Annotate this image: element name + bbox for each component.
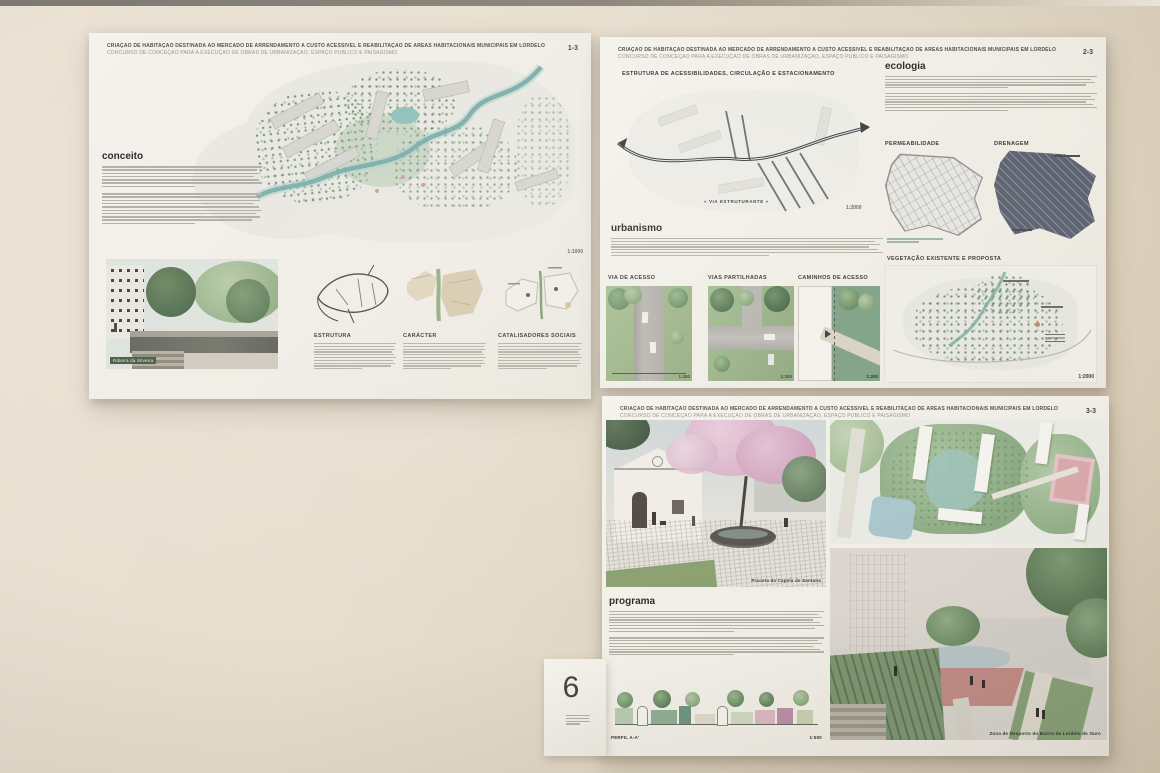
catalysts-diagram: [498, 261, 582, 327]
program-heading: programa: [609, 596, 824, 607]
green-tree: [782, 456, 826, 502]
program-block: [651, 710, 677, 724]
panel-subtitle: CONCURSO DE CONCEÇÃO PARA A EXECUÇÃO DE …: [618, 54, 1060, 60]
tree-blob: [685, 692, 700, 707]
diagram-note: [1054, 155, 1080, 157]
tree-blob: [710, 288, 734, 312]
column-paragraph: [314, 343, 396, 371]
program-block: [755, 710, 775, 724]
program-block: [777, 708, 793, 724]
plan-legend: [1045, 332, 1065, 342]
dimension-line: [612, 373, 686, 374]
car: [642, 312, 649, 323]
tree-blob: [838, 288, 860, 310]
person-figure: [114, 323, 117, 332]
tree-blob: [764, 286, 790, 312]
column-heading: CATALISADORES SOCIAIS: [498, 333, 576, 339]
program-section: programa: [609, 596, 824, 657]
panel-2-header: CRIAÇÃO DE HABITAÇÃO DESTINADA AO MERCAD…: [618, 47, 1060, 60]
ecology-paragraph: [885, 93, 1097, 111]
accessibility-map: « VIA ESTRUTURANTE »: [608, 81, 880, 221]
panel-title: CRIAÇÃO DE HABITAÇÃO DESTINADA AO MERCAD…: [618, 47, 1060, 53]
map-fill-dark: [994, 149, 1096, 239]
vegetation-heading: VEGETAÇÃO EXISTENTE E PROPOSTA: [887, 256, 1001, 262]
tree-blob: [738, 290, 754, 306]
concept-heading: conceito: [102, 151, 262, 162]
chapel-oculus: [652, 456, 663, 467]
panel-1-board: CRIAÇÃO DE HABITAÇÃO DESTINADA AO MERCAD…: [89, 33, 591, 399]
concept-paragraph: [102, 166, 262, 187]
tree-blob: [793, 690, 809, 706]
access-scale: 1:2000: [846, 205, 862, 211]
program-block: [797, 710, 813, 724]
structure-diagram: [314, 261, 396, 327]
plan-scale: 1:1000: [567, 249, 583, 255]
plan-label: [1041, 306, 1063, 308]
street1-heading: VIA DE ACESSO: [608, 275, 655, 281]
program-block: [679, 706, 691, 724]
exhibit-card-text: [566, 715, 590, 726]
exhibit-number-card: 6: [544, 659, 606, 756]
ecology-section: ecologia: [885, 61, 1097, 113]
exhibition-wall: CRIAÇÃO DE HABITAÇÃO DESTINADA AO MERCAD…: [0, 0, 1160, 773]
sports-render: Zona de Desporto do Bairro de Lordelo do…: [830, 548, 1107, 740]
car: [768, 354, 774, 365]
vegetation-stream: [885, 266, 1096, 382]
tree-blob: [858, 294, 874, 310]
plan-accent: [421, 183, 425, 187]
page-number: 3-3: [1086, 408, 1096, 415]
panel-title: CRIAÇÃO DE HABITAÇÃO DESTINADA AO MERCAD…: [107, 43, 545, 49]
drainage-heading: DRENAGEM: [994, 141, 1029, 147]
permeability-heading: PERMEABILIDADE: [885, 141, 939, 147]
program-block: [731, 712, 753, 724]
road-label: « VIA ESTRUTURANTE »: [704, 199, 769, 204]
plan-accent: [375, 189, 379, 193]
arch-element: [717, 706, 728, 726]
person-figure: [982, 680, 985, 688]
tree-blob: [759, 692, 774, 707]
column-paragraph: [498, 343, 582, 371]
urbanism-section: urbanismo: [611, 223, 883, 258]
plan-accent: [401, 175, 405, 179]
page-number: 1-3: [568, 45, 578, 52]
housing-facade: [106, 265, 144, 339]
map-fill: [887, 154, 982, 235]
drainage-diagram: [994, 149, 1096, 239]
plan-accent: [1035, 322, 1040, 327]
diagram-note: [1012, 229, 1032, 231]
river-render: Ribeira da Silveira: [106, 259, 278, 369]
tree-blob: [624, 286, 642, 304]
vegetation-scale: 1:2000: [1078, 374, 1094, 380]
tree-blob: [926, 606, 980, 646]
program-paragraph: [609, 637, 824, 655]
plan-label: [1003, 280, 1029, 282]
street2-diagram: 1:200: [708, 286, 794, 381]
street-scale: 1:200: [780, 374, 792, 379]
permeability-diagram: [885, 152, 983, 236]
column-heading: CARÁCTER: [403, 333, 437, 339]
pond: [867, 495, 916, 541]
person-figure: [1042, 710, 1045, 719]
panel-3-board: CRIAÇÃO DE HABITAÇÃO DESTINADA AO MERCAD…: [602, 396, 1109, 756]
car: [764, 334, 775, 340]
urbanism-heading: urbanismo: [611, 223, 883, 234]
panel-3-header: CRIAÇÃO DE HABITAÇÃO DESTINADA AO MERCAD…: [620, 406, 1063, 419]
profile-scale: 1:500: [809, 735, 822, 740]
accessibility-heading: ESTRUTURA DE ACESSIBILIDADES, CIRCULAÇÃO…: [622, 71, 882, 77]
person-figure: [970, 676, 973, 685]
arch-element: [637, 706, 648, 726]
column-heading: ESTRUTURA: [314, 333, 351, 339]
dark-tree: [226, 279, 270, 323]
ecology-paragraph: [885, 76, 1097, 88]
program-block: [695, 714, 715, 724]
diagram-note: [887, 238, 943, 245]
street3-heading: CAMINHOS DE ACESSO: [798, 275, 868, 281]
sports-caption: Zona de Desporto do Bairro de Lordelo do…: [989, 731, 1101, 736]
character-diagram: [403, 261, 486, 327]
person-figure: [784, 518, 788, 527]
program-paragraph: [609, 611, 824, 632]
boundary-line: [834, 286, 835, 381]
tree-blob: [714, 356, 730, 372]
blossom-canopy: [666, 434, 718, 474]
stairs: [830, 704, 886, 740]
foliage: [606, 420, 650, 450]
column-paragraph: [403, 343, 486, 371]
tree-blob: [727, 690, 744, 707]
ecology-heading: ecologia: [885, 61, 1097, 72]
chapel-window: [672, 500, 684, 514]
entry-marker: [825, 330, 831, 338]
program-block: [615, 708, 633, 724]
chapel-caption: Praceta da Capela de Santana: [751, 578, 821, 583]
street-scale: 1:200: [678, 374, 690, 379]
car: [650, 342, 656, 353]
concept-section: conceito: [102, 151, 262, 226]
person-figure: [692, 516, 695, 526]
street1-diagram: 1:200: [606, 286, 692, 381]
street2-heading: VIAS PARTILHADAS: [708, 275, 767, 281]
tree-blob: [653, 690, 671, 708]
street3-diagram: 1:200: [798, 286, 880, 381]
tree-blob: [670, 330, 684, 344]
urbanism-paragraph: [611, 238, 883, 256]
render-caption: Ribeira da Silveira: [110, 357, 156, 364]
panel-subtitle: CONCURSO DE CONCEÇÃO PARA A EXECUÇÃO DE …: [620, 413, 1063, 419]
person-figure: [652, 512, 656, 525]
panel-2-board: CRIAÇÃO DE HABITAÇÃO DESTINADA AO MERCAD…: [600, 37, 1106, 388]
concept-paragraph: [102, 193, 262, 224]
street-scale: 1:200: [866, 374, 878, 379]
wall-top-shadow: [0, 0, 1160, 6]
person-figure: [1036, 708, 1039, 717]
chapel-render: Praceta da Capela de Santana: [606, 420, 826, 587]
profile-section-drawing: PERFIL A-A' 1:500: [607, 678, 826, 740]
panel-title: CRIAÇÃO DE HABITAÇÃO DESTINADA AO MERCAD…: [620, 406, 1063, 412]
profile-label: PERFIL A-A': [611, 735, 639, 740]
sports-court: [1049, 453, 1095, 506]
tree-blob: [617, 692, 633, 708]
tree-blob: [668, 288, 688, 308]
fountain-water: [718, 529, 768, 539]
person-figure: [894, 666, 897, 676]
page-number: 2-3: [1083, 49, 1093, 56]
exhibit-number: 6: [544, 671, 598, 705]
aerial-plan-render: [830, 420, 1107, 544]
vegetation-plan: 1:2000: [885, 266, 1096, 382]
dog-figure: [660, 521, 666, 525]
dark-tree: [146, 267, 196, 317]
